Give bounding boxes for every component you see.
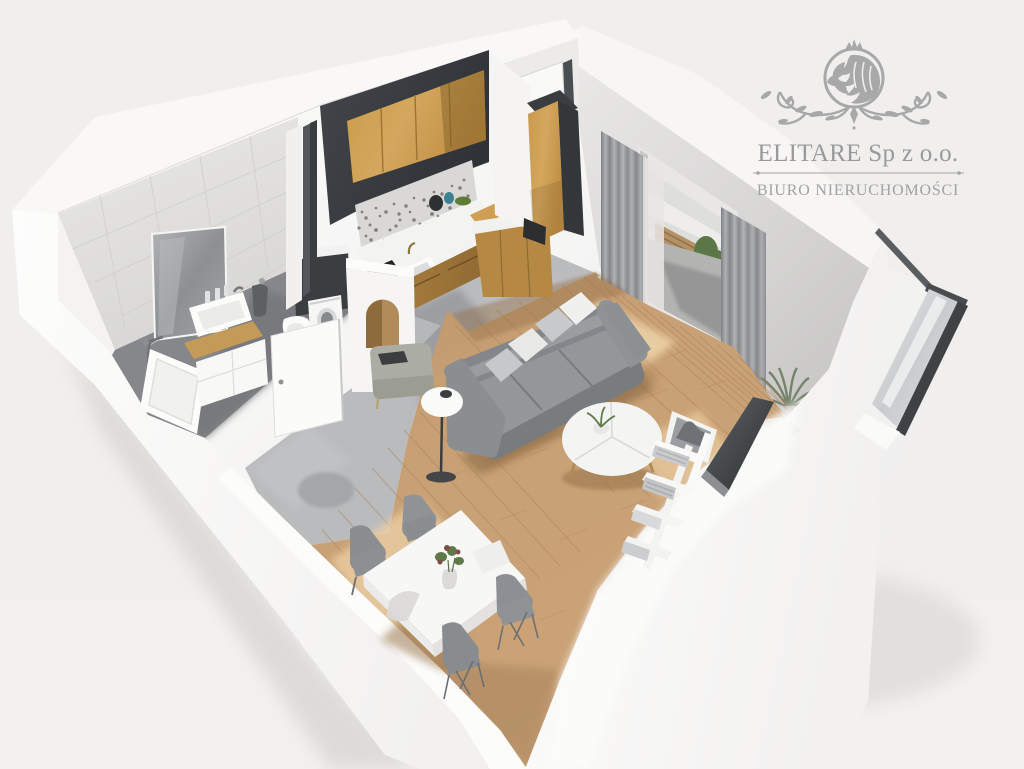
svg-text:ELITARE Sp z o.o.: ELITARE Sp z o.o. (758, 140, 959, 167)
svg-text:BIURO NIERUCHOMOŚCI: BIURO NIERUCHOMOŚCI (757, 180, 959, 199)
